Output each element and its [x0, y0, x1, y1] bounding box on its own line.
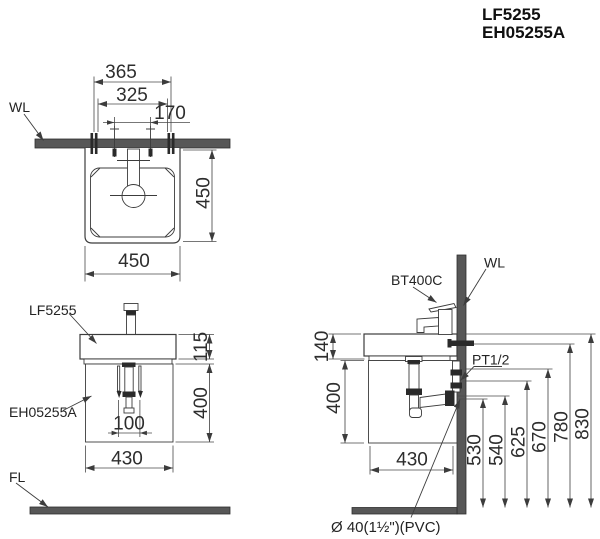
wall-line-label-top: WL [9, 99, 30, 115]
basin-model-label: LF5255 [29, 302, 77, 318]
wall-line-leader-side [464, 269, 487, 306]
technical-drawing-page: LF5255 EH05255A [0, 0, 600, 539]
front-view: LF5255 EH05255A FL 115 400 100 [9, 302, 230, 514]
dim-text-530: 530 [465, 434, 486, 466]
floor-line-leader [16, 483, 48, 507]
dim-width-450: 450 [85, 246, 180, 282]
faucet-model-label: BT400C [391, 272, 442, 288]
supply-pipe-side [451, 361, 463, 392]
wall-line-bar-top-view [35, 139, 230, 148]
dim-text-100: 100 [113, 414, 145, 435]
dim-text-430-side: 430 [396, 450, 428, 471]
faucet-front [124, 304, 138, 335]
title-block: LF5255 EH05255A [482, 5, 565, 42]
dim-basin-height-140: 140 [312, 331, 365, 363]
dim-depth-450: 450 [183, 150, 217, 242]
supply-connection-label: PT1/2 [472, 352, 510, 368]
side-view: BT400C WL PT1/2 Ø 40(1½")(PVC) 140 400 4… [312, 255, 596, 537]
dim-text-365: 365 [105, 62, 137, 83]
dim-text-140: 140 [312, 331, 333, 363]
dim-hole-spacing-170: 170 [103, 103, 190, 126]
drain-size-label: Ø 40(1½")(PVC) [331, 519, 441, 536]
installation-diagram-svg: LF5255 EH05255A [0, 0, 600, 539]
floor-line-label: FL [9, 469, 26, 485]
cabinet-model-label: EH05255A [9, 404, 77, 420]
dim-text-830: 830 [573, 408, 594, 440]
dim-text-115: 115 [191, 332, 212, 362]
dim-cabinet-width-430: 430 [86, 446, 174, 473]
top-view: WL 365 325 170 450 [9, 62, 230, 282]
basin-front [80, 335, 176, 360]
dim-cabinet-depth-430: 430 [370, 446, 453, 475]
dim-text-400-side: 400 [324, 382, 345, 414]
dim-text-430-front: 430 [111, 449, 143, 470]
dim-text-325: 325 [116, 85, 148, 106]
dim-text-625: 625 [509, 426, 530, 458]
dim-cabinet-height-400-side: 400 [324, 361, 364, 444]
dim-basin-height-115: 115 [179, 332, 215, 362]
faucet-model-leader [413, 287, 437, 303]
dim-text-540: 540 [487, 434, 508, 466]
floor-line-bar-front [30, 507, 230, 514]
dim-text-670: 670 [530, 421, 551, 453]
faucet-side [417, 304, 456, 335]
dim-cabinet-height-400-front: 400 [176, 364, 215, 442]
dim-text-400-front: 400 [191, 387, 212, 419]
floor-line-bar-side [352, 508, 457, 515]
title-model-cabinet: EH05255A [482, 23, 565, 42]
dim-text-170: 170 [154, 103, 186, 124]
basin-side [364, 334, 457, 356]
wall-line-leader-top [24, 114, 44, 141]
wall-line-label-side: WL [484, 255, 505, 271]
dim-text-depth-450: 450 [194, 177, 215, 209]
title-model-basin: LF5255 [482, 5, 541, 24]
dim-text-780: 780 [552, 411, 573, 443]
dim-text-width-450: 450 [118, 251, 150, 272]
